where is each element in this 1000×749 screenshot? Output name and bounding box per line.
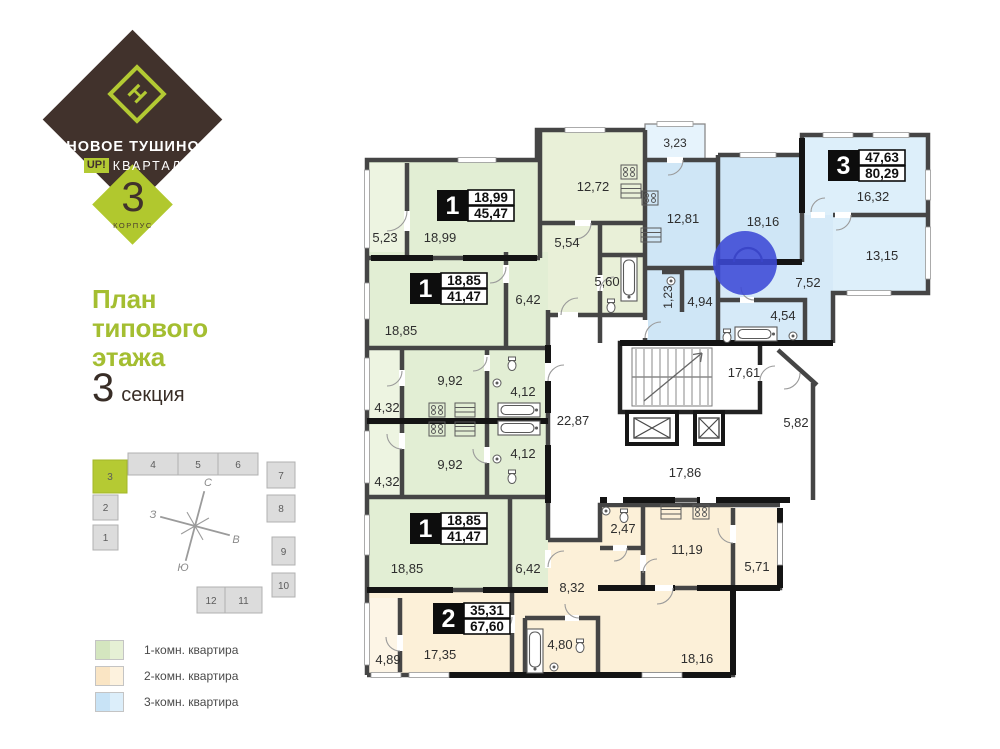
legend-item-1room: 1-комн. квартира: [95, 641, 238, 659]
legend-swatch-3room: [95, 692, 124, 712]
svg-text:35,31: 35,31: [470, 603, 504, 618]
room-area-label: 2,47: [610, 521, 635, 536]
toilet-icon: [508, 357, 516, 371]
svg-text:3: 3: [107, 472, 113, 483]
svg-text:6: 6: [235, 460, 241, 471]
apartment-tag-3: 3 47,63 80,29: [828, 150, 905, 181]
room-area-label: 4,54: [770, 308, 795, 323]
room-area-label: 7,52: [795, 275, 820, 290]
svg-text:8: 8: [278, 504, 284, 515]
svg-text:18,85: 18,85: [447, 513, 481, 528]
room-area-label: 4,89: [375, 652, 400, 667]
bathtub-icon: [498, 421, 540, 435]
apartment-tag-2: 2 35,31 67,60: [433, 603, 510, 634]
building-label: КОРПУС: [40, 221, 226, 230]
room-area-label: 12,72: [577, 179, 610, 194]
apartment-tag-1-middle: 1 18,85 41,47: [410, 273, 487, 304]
sink-icon: [493, 455, 501, 463]
section-label: секция: [121, 384, 184, 407]
room-area-label: 18,85: [391, 561, 424, 576]
room-area-label: 5,82: [783, 415, 808, 430]
up-badge: UP!: [84, 158, 109, 173]
room-area-label: 6,42: [515, 561, 540, 576]
svg-text:41,47: 41,47: [447, 529, 481, 544]
sink-icon: [602, 507, 610, 515]
sink-icon: [789, 332, 797, 340]
svg-text:9: 9: [281, 547, 287, 558]
svg-text:67,60: 67,60: [470, 619, 504, 634]
compass-south: Ю: [177, 562, 188, 574]
legend: 1-комн. квартира 2-комн. квартира 3-комн…: [95, 641, 238, 719]
svg-text:1: 1: [103, 533, 109, 544]
bathtub-icon: [498, 403, 540, 417]
room-area-label: 17,35: [424, 647, 457, 662]
toilet-icon: [723, 329, 731, 343]
room-area-label: 17,86: [669, 465, 702, 480]
legend-swatch-1room: [95, 640, 124, 660]
room-area-label: 18,99: [424, 230, 457, 245]
room-area-label: 17,61: [728, 365, 761, 380]
toilet-icon: [607, 299, 615, 313]
svg-text:45,47: 45,47: [474, 206, 508, 221]
kvartal-label: КВАРТАЛ: [113, 159, 182, 173]
apartment-tag-1-lower: 1 18,85 41,47: [410, 513, 487, 544]
room-area-label: 5,71: [744, 559, 769, 574]
legend-item-2room: 2-комн. квартира: [95, 667, 238, 685]
svg-text:2: 2: [442, 605, 456, 633]
project-subtitle: UP! КВАРТАЛ: [40, 158, 226, 173]
svg-text:12: 12: [205, 596, 217, 607]
bathtub-icon: [735, 327, 777, 341]
room-area-label: 18,16: [747, 214, 780, 229]
sink-icon: [550, 663, 558, 671]
room-area-label: 11,19: [671, 542, 703, 557]
legend-item-3room: 3-комн. квартира: [95, 693, 238, 711]
legend-swatch-2room: [95, 666, 124, 686]
compass-north: С: [204, 477, 212, 489]
room-area-label: 4,12: [510, 384, 535, 399]
svg-text:18,99: 18,99: [474, 190, 508, 205]
room-area-label: 16,32: [857, 189, 890, 204]
room-area-label: 9,92: [437, 457, 462, 472]
section-number: 3: [92, 366, 114, 411]
room-area-label: 4,32: [374, 400, 399, 415]
room-area-label: 18,16: [681, 651, 714, 666]
sink-icon: [667, 277, 675, 285]
apartment-tag-1-top: 1 18,99 45,47: [437, 190, 514, 221]
svg-text:4: 4: [150, 460, 156, 471]
selected-apartment-marker[interactable]: [713, 231, 777, 295]
room-area-label: 4,80: [547, 637, 572, 652]
room-area-label: 18,85: [385, 323, 418, 338]
room-area-label: 4,94: [687, 294, 712, 309]
building-number: 3: [40, 175, 226, 219]
room-area-label: 5,23: [372, 230, 397, 245]
section-title: 3 секция: [92, 366, 185, 411]
room-area-label: 4,12: [510, 446, 535, 461]
room-area-label: 9,92: [437, 373, 462, 388]
room-area-label: 5,60: [594, 274, 619, 289]
svg-text:80,29: 80,29: [865, 166, 899, 181]
room-area-label: 12,81: [667, 211, 700, 226]
svg-text:2: 2: [103, 503, 109, 514]
svg-text:47,63: 47,63: [865, 150, 899, 165]
svg-text:11: 11: [238, 596, 249, 607]
elevator-shafts: [627, 412, 723, 444]
sink-icon: [493, 379, 501, 387]
bathtub-icon: [621, 257, 637, 301]
toilet-icon: [576, 639, 584, 653]
toilet-icon: [508, 470, 516, 484]
svg-text:3: 3: [837, 152, 851, 180]
brand-logo: Н НОВОЕ ТУШИНО UP! КВАРТАЛ 3 КОРПУС: [40, 22, 240, 252]
room-area-label: 22,87: [557, 413, 590, 428]
svg-text:1: 1: [419, 275, 433, 303]
bathtub-icon: [527, 629, 543, 673]
compass-east: В: [232, 534, 239, 546]
svg-text:10: 10: [278, 581, 290, 592]
svg-text:5: 5: [195, 460, 201, 471]
room-area-label: 8,32: [559, 580, 584, 595]
site-mini-map: 1 2 3 4 5 6 7 8 9 10 11 12 С В Ю З: [85, 448, 315, 628]
room-area-label: 4,32: [374, 474, 399, 489]
floor-plan: 5,23 18,99 12,72 5,54 5,60 3,23 12,81 18…: [345, 115, 955, 715]
room-area-label: 13,15: [866, 248, 899, 263]
project-name: НОВОЕ ТУШИНО: [40, 139, 226, 155]
room-area-label: 1,23: [661, 285, 675, 309]
svg-text:7: 7: [278, 471, 284, 482]
svg-text:41,47: 41,47: [447, 289, 481, 304]
room-area-label: 3,23: [663, 136, 687, 150]
svg-text:1: 1: [446, 192, 460, 220]
room-area-label: 5,54: [554, 235, 579, 250]
svg-text:1: 1: [419, 515, 433, 543]
svg-text:18,85: 18,85: [447, 273, 481, 288]
compass-rose: [160, 491, 230, 561]
page-title: План типового этажа: [92, 285, 208, 372]
compass-west: З: [150, 509, 157, 521]
room-area-label: 6,42: [515, 292, 540, 307]
